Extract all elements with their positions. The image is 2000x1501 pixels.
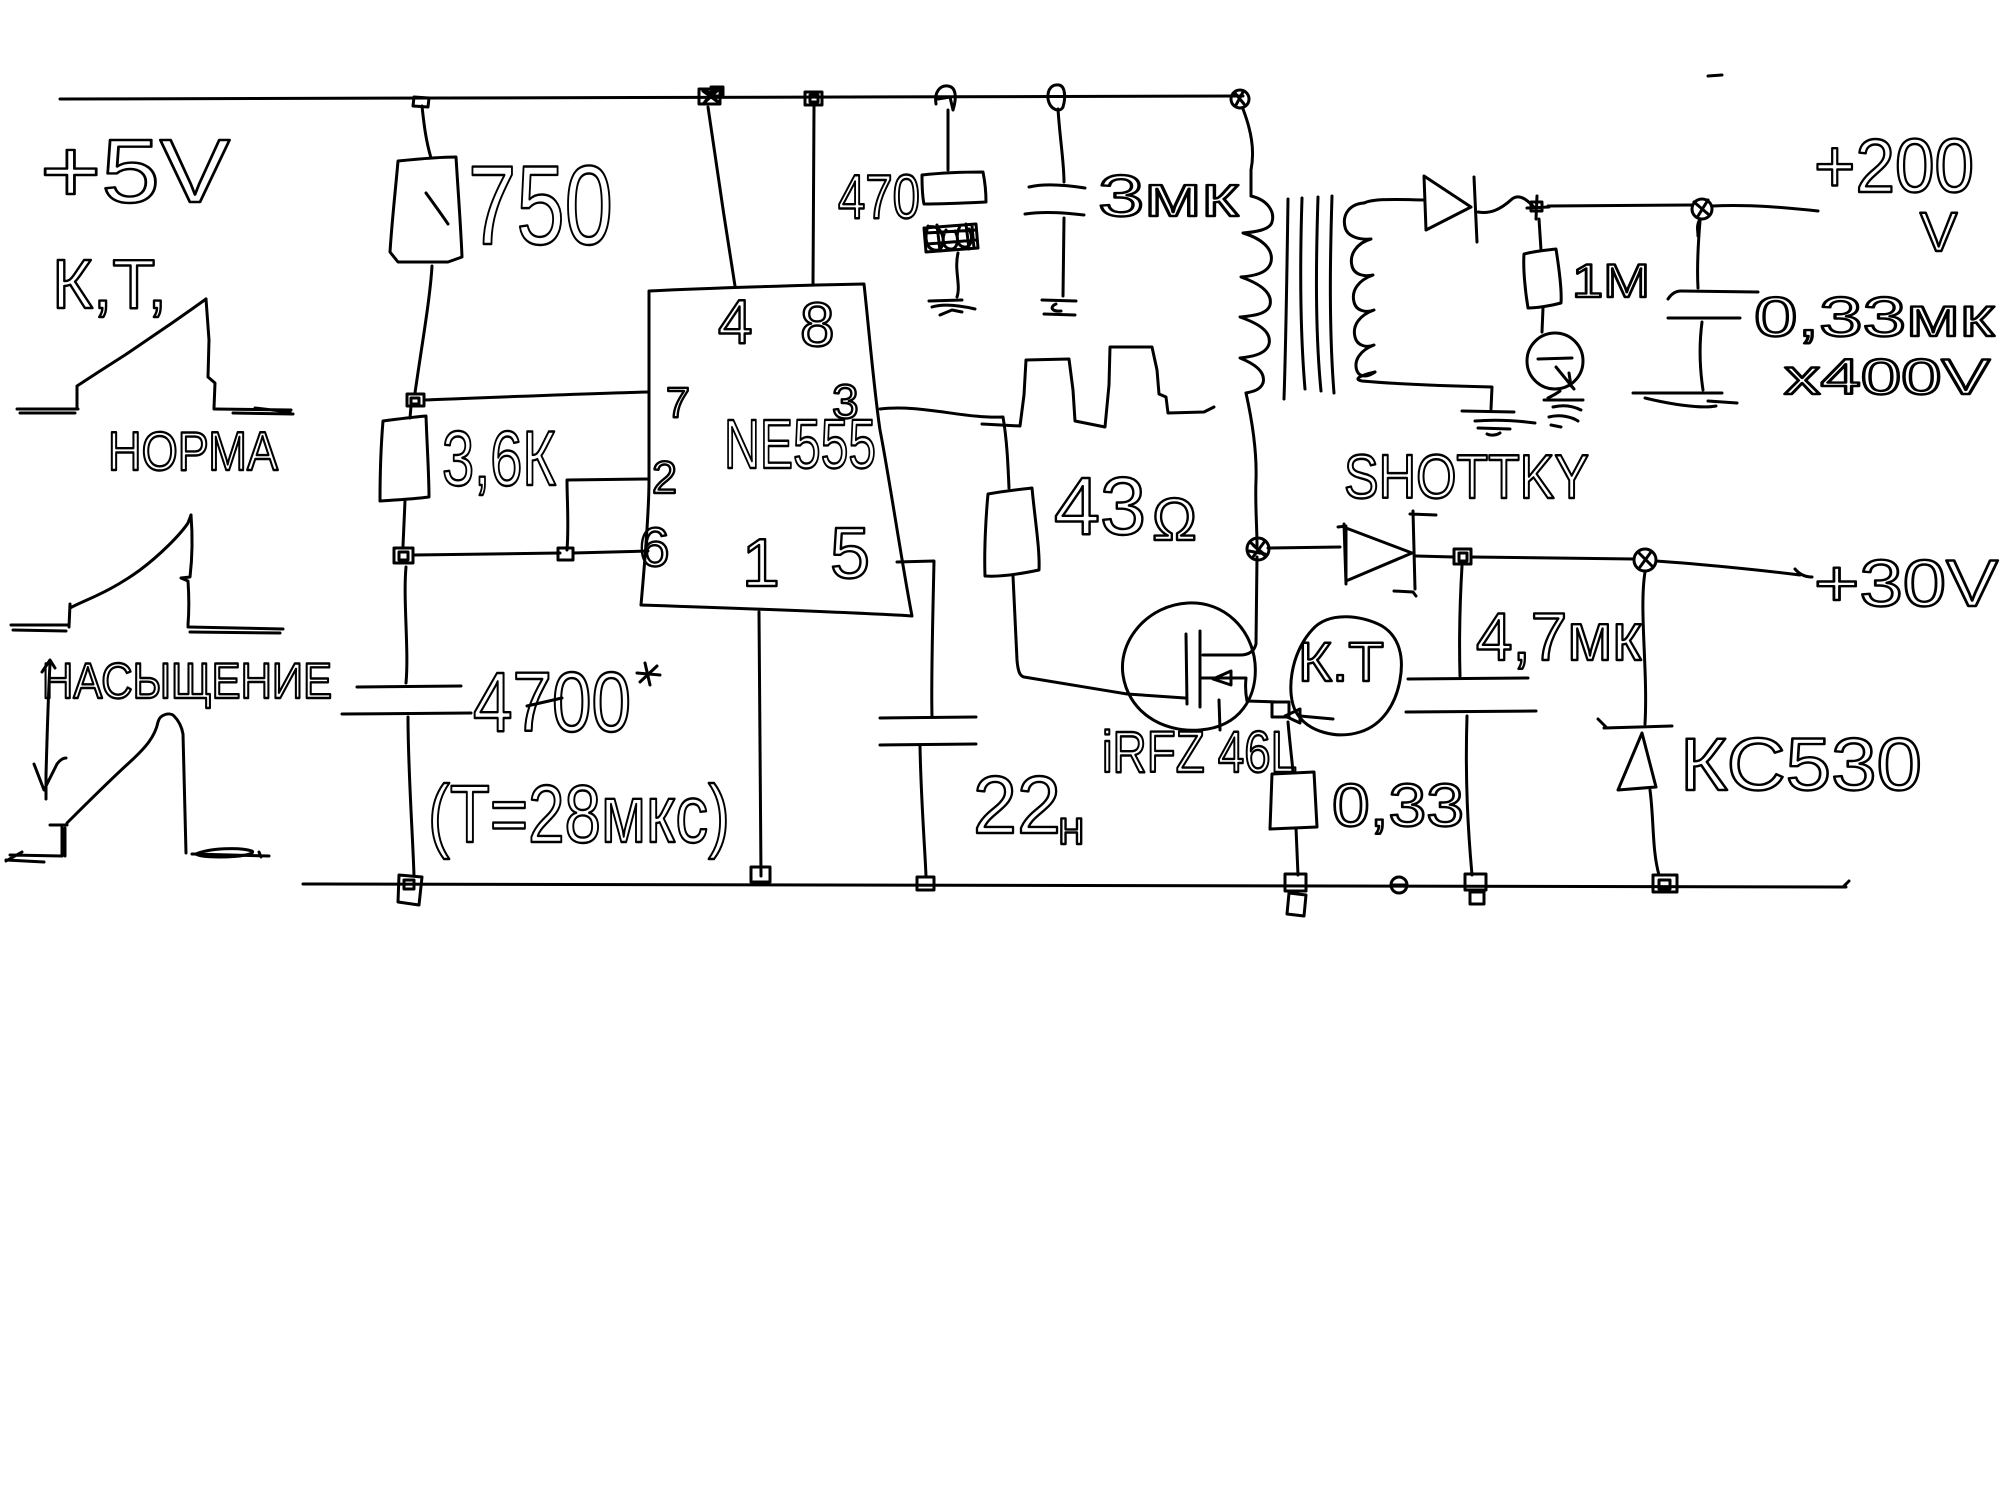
svg-text:22: 22 xyxy=(973,760,1061,851)
svg-text:х400V: х400V xyxy=(1784,349,1991,405)
svg-text:н: н xyxy=(1058,802,1085,855)
svg-text:+30V: +30V xyxy=(1814,546,1998,620)
svg-text:0,33мк: 0,33мк xyxy=(1754,285,1995,348)
svg-text:SHOTTKY: SHOTTKY xyxy=(1344,443,1589,512)
svg-text:750: 750 xyxy=(468,143,613,268)
svg-text:НОРМА: НОРМА xyxy=(108,420,278,482)
svg-text:4700: 4700 xyxy=(473,655,631,749)
svg-text:4: 4 xyxy=(718,288,752,357)
svg-text:(Т=28мкс): (Т=28мкс) xyxy=(428,769,730,860)
svg-text:43: 43 xyxy=(1054,461,1146,552)
svg-text:7: 7 xyxy=(666,379,690,427)
svg-text:3мк: 3мк xyxy=(1098,164,1239,229)
svg-text:470: 470 xyxy=(838,163,920,232)
svg-text:3,6К: 3,6К xyxy=(442,414,556,502)
svg-text:iRFZ 46L: iRFZ 46L xyxy=(1102,720,1297,785)
svg-text:1М: 1М xyxy=(1572,254,1650,307)
svg-text:1: 1 xyxy=(742,525,780,601)
svg-text:V: V xyxy=(1920,200,1958,263)
svg-text:Ω: Ω xyxy=(1152,486,1197,553)
svg-text:6: 6 xyxy=(639,516,670,578)
svg-text:+5V: +5V xyxy=(40,122,230,222)
svg-text:5: 5 xyxy=(830,514,870,594)
svg-text:3: 3 xyxy=(832,376,859,429)
svg-text:НАСЫЩЕНИЕ: НАСЫЩЕНИЕ xyxy=(42,653,332,709)
svg-text:КС530: КС530 xyxy=(1680,723,1922,806)
svg-text:+200: +200 xyxy=(1814,124,1974,209)
svg-text:0,33: 0,33 xyxy=(1332,772,1464,839)
svg-text:К.Т: К.Т xyxy=(1298,630,1384,693)
svg-text:2: 2 xyxy=(652,452,677,503)
svg-text:8: 8 xyxy=(800,291,834,360)
svg-text:К,Т,: К,Т, xyxy=(52,245,167,323)
svg-text:4,7мк: 4,7мк xyxy=(1476,599,1642,675)
